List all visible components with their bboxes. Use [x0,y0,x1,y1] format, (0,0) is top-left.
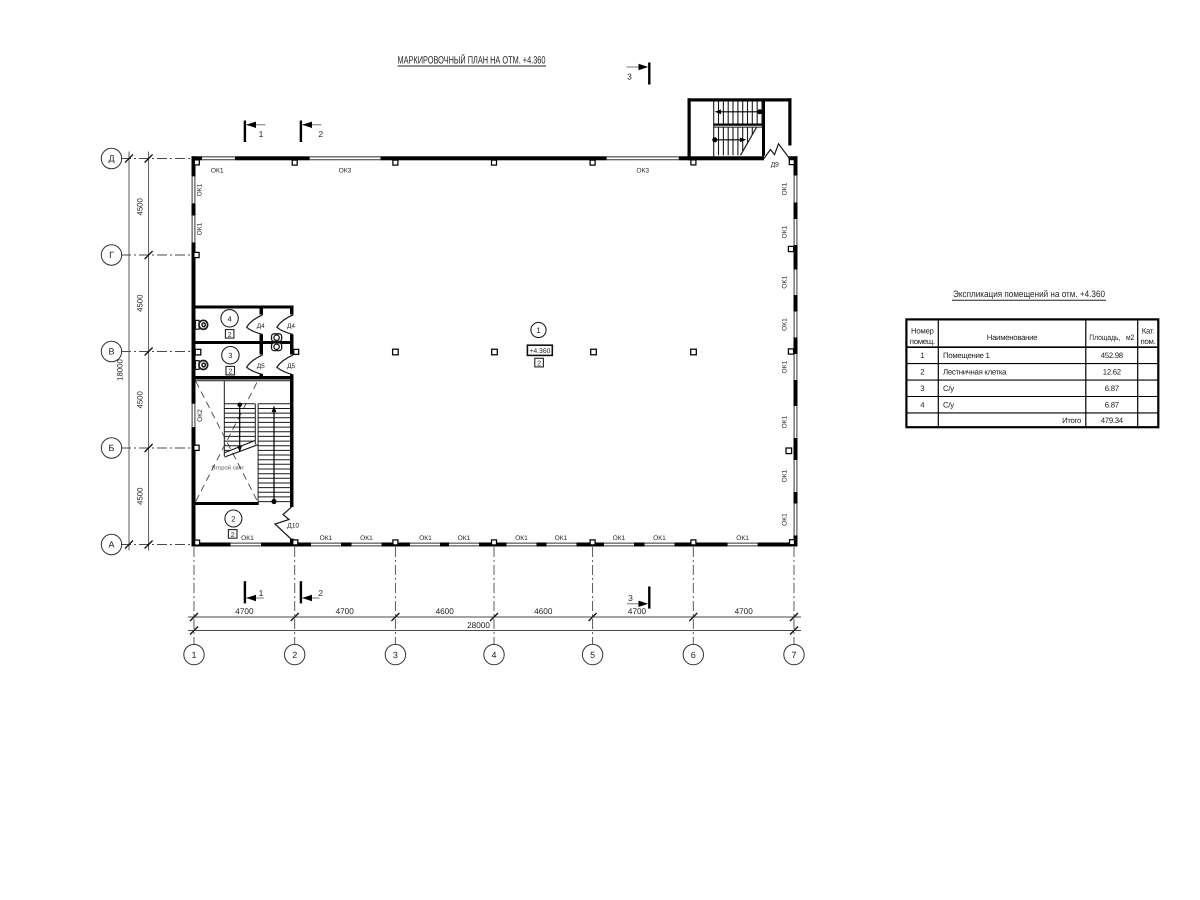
svg-text:ОК1: ОК1 [736,535,749,542]
svg-text:1: 1 [536,326,541,335]
svg-text:ОК2: ОК2 [197,409,204,422]
svg-text:ОК1: ОК1 [781,182,788,195]
svg-text:ОК3: ОК3 [636,168,649,175]
svg-text:3: 3 [228,351,232,360]
svg-text:Б: Б [109,443,115,453]
svg-text:1: 1 [920,351,924,360]
svg-text:12.62: 12.62 [1103,368,1121,377]
svg-text:28000: 28000 [467,621,490,630]
svg-text:Наименование: Наименование [987,333,1037,342]
svg-text:ОК1: ОК1 [197,183,204,196]
svg-text:4700: 4700 [628,607,647,616]
svg-text:Д4: Д4 [257,323,265,330]
svg-text:ОК1: ОК1 [781,276,788,289]
svg-text:2: 2 [318,129,323,139]
svg-text:ОК1: ОК1 [320,535,333,542]
svg-text:МАРКИРОВОЧНЫЙ ПЛАН НА ОТМ. +4.: МАРКИРОВОЧНЫЙ ПЛАН НА ОТМ. +4.360 [398,54,546,67]
svg-text:ОК1: ОК1 [781,318,788,331]
svg-text:4700: 4700 [735,607,754,616]
svg-text:1: 1 [259,129,264,139]
svg-text:452.98: 452.98 [1101,351,1123,360]
svg-text:Д5: Д5 [257,363,265,370]
svg-text:3: 3 [627,72,632,82]
svg-text:4600: 4600 [436,607,455,616]
svg-text:2: 2 [292,650,297,660]
svg-text:2: 2 [920,368,924,377]
svg-text:ОК1: ОК1 [515,535,528,542]
svg-text:ОК1: ОК1 [613,535,626,542]
svg-text:Помещение 1: Помещение 1 [943,351,990,360]
svg-text:4700: 4700 [336,607,355,616]
svg-text:ОК1: ОК1 [781,513,788,526]
svg-text:2: 2 [228,369,232,376]
svg-text:4500: 4500 [136,390,145,408]
svg-text:А: А [108,540,114,550]
svg-text:4: 4 [491,650,496,660]
svg-text:С/у: С/у [943,384,954,393]
svg-text:+4.360: +4.360 [529,348,550,355]
svg-text:ОК1: ОК1 [197,222,204,235]
svg-text:2: 2 [537,361,541,368]
svg-text:2: 2 [318,588,323,598]
svg-text:ОК1: ОК1 [241,535,254,542]
svg-text:Кат.: Кат. [1142,327,1155,336]
svg-text:2: 2 [231,514,235,523]
svg-text:3: 3 [920,384,924,393]
svg-text:Д4: Д4 [287,323,295,330]
svg-text:3: 3 [393,650,398,660]
svg-text:5: 5 [590,650,595,660]
svg-text:помещ.: помещ. [910,337,935,346]
svg-text:3: 3 [628,593,633,603]
svg-text:479.34: 479.34 [1101,416,1124,425]
svg-text:ОК1: ОК1 [555,535,568,542]
svg-text:Д: Д [108,154,114,164]
svg-text:ОК1: ОК1 [419,535,432,542]
svg-text:4500: 4500 [136,197,145,215]
svg-text:Д10: Д10 [287,523,299,530]
svg-text:1: 1 [259,588,264,598]
svg-text:Экспликация помещений на отм.: Экспликация помещений на отм. +4.360 [953,289,1105,299]
svg-text:Второй свет: Второй свет [212,464,245,471]
svg-text:7: 7 [791,650,796,660]
svg-text:ОК3: ОК3 [339,168,352,175]
svg-text:Г: Г [109,250,114,260]
svg-text:4500: 4500 [136,487,145,505]
svg-text:6: 6 [691,650,696,660]
svg-text:4: 4 [227,314,231,323]
svg-text:С/у: С/у [943,401,954,410]
svg-text:В: В [108,347,114,357]
svg-text:4600: 4600 [534,607,553,616]
svg-text:4700: 4700 [235,607,254,616]
svg-text:Итого: Итого [1062,416,1082,425]
svg-text:Площадь, м2: Площадь, м2 [1089,333,1134,342]
svg-text:ОК1: ОК1 [781,225,788,238]
svg-text:ОК1: ОК1 [653,535,666,542]
svg-text:18000: 18000 [115,358,124,380]
svg-text:4500: 4500 [136,294,145,312]
svg-text:ОК1: ОК1 [211,168,224,175]
svg-text:Номер: Номер [911,327,934,336]
svg-text:6.87: 6.87 [1105,384,1119,393]
svg-text:Д9: Д9 [771,162,779,169]
svg-text:Лестничная клетка: Лестничная клетка [943,368,1007,377]
svg-text:6.87: 6.87 [1105,401,1119,410]
svg-text:ОК1: ОК1 [781,469,788,482]
svg-text:ОК1: ОК1 [360,535,373,542]
svg-text:2: 2 [228,332,232,339]
svg-text:ОК1: ОК1 [781,360,788,373]
svg-text:2: 2 [231,532,235,539]
svg-text:1: 1 [191,650,196,660]
svg-text:ОК1: ОК1 [781,415,788,428]
svg-text:ОК1: ОК1 [458,535,471,542]
svg-text:пом.: пом. [1141,337,1156,346]
svg-text:Д5: Д5 [287,363,295,370]
